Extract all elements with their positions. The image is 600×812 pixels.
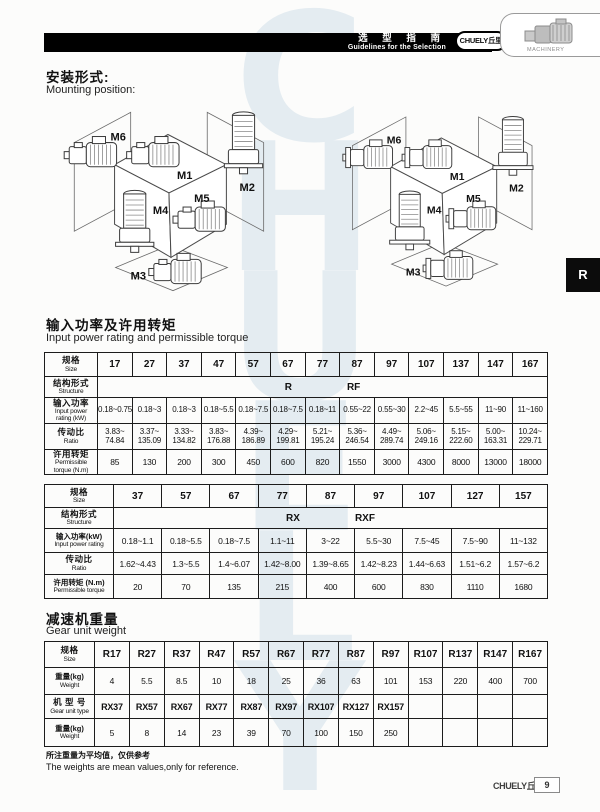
type-weight-cell: 23: [199, 719, 234, 747]
label-m4: M4: [427, 204, 442, 216]
type-cell: RX67: [164, 695, 199, 719]
type-cell: [513, 695, 548, 719]
label-m2: M2: [509, 182, 524, 194]
torque-cell: 130: [132, 450, 167, 475]
ratio-cell: 3.83~ 74.84: [98, 424, 133, 450]
power-cell: 0.55~22: [340, 398, 375, 424]
machinery-tab: MACHINERY: [500, 13, 600, 57]
size-cell: 127: [451, 485, 499, 508]
size-cell: 97: [374, 353, 409, 377]
torque-cell: 820: [305, 450, 340, 475]
power-cell: 0.18~5.5: [201, 398, 236, 424]
torque-cell: 70: [162, 575, 210, 599]
motor-m2: [493, 116, 533, 175]
ratio-cell: 1.39~8.65: [306, 553, 354, 575]
row-label: 传动比 Ratio: [45, 553, 114, 575]
table-row: 输入功率 Input power rating (kW) 0.18~0.750.…: [45, 398, 548, 424]
torque-cell: 215: [258, 575, 306, 599]
type-weight-cell: [513, 719, 548, 747]
power-cell: 0.55~30: [374, 398, 409, 424]
label-m2: M2: [239, 182, 254, 194]
type-cell: [443, 695, 478, 719]
gearmotor-photo-icon: [523, 17, 579, 47]
table-row: 规格 Size 375767778797107127157: [45, 485, 548, 508]
type-weight-cell: 70: [269, 719, 304, 747]
power-cell: 0.18~11: [305, 398, 340, 424]
motor-m3: [423, 251, 473, 280]
header-title-en: Guidelines for the Selection: [44, 44, 446, 52]
row-label: 输入功率(kW) Input power rating: [45, 529, 114, 553]
header-title-cn: 选 型 指 南: [44, 34, 446, 44]
header-bar: 选 型 指 南 Guidelines for the Selection: [44, 33, 492, 52]
type-cell: RX77: [199, 695, 234, 719]
table-row: 输入功率(kW) Input power rating 0.18~1.10.18…: [45, 529, 548, 553]
size-cell: 37: [114, 485, 162, 508]
ratio-cell: 10.24~ 229.71: [513, 424, 548, 450]
size-cell: 97: [355, 485, 403, 508]
power-heading-cn: 输入功率及许用转矩: [46, 314, 177, 334]
size-cell: 77: [305, 353, 340, 377]
size-cell: 57: [162, 485, 210, 508]
row-label: 传动比 Ratio: [45, 424, 98, 450]
machinery-label: MACHINERY: [527, 47, 564, 53]
size-cell: 17: [98, 353, 133, 377]
label-m5: M5: [194, 193, 209, 205]
size-cell: 47: [201, 353, 236, 377]
ratio-cell: 1.62~4.43: [114, 553, 162, 575]
row-label: 许用转矩 (N.m) Permissible torque: [45, 575, 114, 599]
type-cell: [408, 695, 443, 719]
row-label: 规格 Size: [45, 642, 95, 668]
ratio-cell: 1.42~8.23: [355, 553, 403, 575]
ratio-cell: 1.44~6.63: [403, 553, 451, 575]
mounting-heading-cn: 安装形式:: [46, 66, 110, 86]
size-cell: R77: [304, 642, 339, 668]
size-cell: R87: [338, 642, 373, 668]
table-row: 结构形式 Structure RX RXF: [45, 508, 548, 529]
weight-cell: 153: [408, 668, 443, 695]
power-cell: 7.5~45: [403, 529, 451, 553]
weight-cell: 220: [443, 668, 478, 695]
table-row: 重量(kg) Weight 5814233970100150250: [45, 719, 548, 747]
type-weight-cell: 150: [338, 719, 373, 747]
size-cell: 107: [403, 485, 451, 508]
size-cell: R17: [95, 642, 130, 668]
size-cell: R97: [373, 642, 408, 668]
note-en: The weights are mean values,only for ref…: [46, 762, 239, 772]
row-label: 规格 Size: [45, 485, 114, 508]
table-row: 传动比 Ratio 3.83~ 74.843.37~ 135.093.33~ 1…: [45, 424, 548, 450]
torque-cell: 600: [271, 450, 306, 475]
power-cell: 11~160: [513, 398, 548, 424]
power-cell: 11~90: [478, 398, 513, 424]
torque-cell: 600: [355, 575, 403, 599]
rx-rxf-rating-table: 规格 Size 375767778797107127157 结构形式 Struc…: [44, 484, 548, 599]
row-label: 机 型 号 Gear unit type: [45, 695, 95, 719]
size-cell: 57: [236, 353, 271, 377]
power-cell: 0.18~3: [167, 398, 202, 424]
label-m5: M5: [466, 193, 481, 205]
ratio-cell: 4.49~ 289.74: [374, 424, 409, 450]
type-weight-cell: [443, 719, 478, 747]
torque-cell: 85: [98, 450, 133, 475]
table-row: 重量(kg) Weight 45.58.51018253663101153220…: [45, 668, 548, 695]
torque-cell: 135: [210, 575, 258, 599]
type-cell: RX57: [129, 695, 164, 719]
power-cell: 0.18~7.5: [210, 529, 258, 553]
section-tab-r: R: [566, 258, 600, 292]
type-cell: RX37: [95, 695, 130, 719]
type-cell: RX87: [234, 695, 269, 719]
table-row: 机 型 号 Gear unit type RX37RX57RX67RX77RX8…: [45, 695, 548, 719]
motor-m2: [224, 112, 262, 174]
row-label: 结构形式 Structure: [45, 377, 98, 398]
mounting-diagram-foot: M1 M2 M3 M4 M5 M6: [38, 98, 310, 306]
torque-cell: 1680: [499, 575, 547, 599]
motor-m3: [149, 253, 201, 283]
size-cell: 87: [306, 485, 354, 508]
size-cell: R67: [269, 642, 304, 668]
type-weight-cell: [478, 719, 513, 747]
row-label: 规格 Size: [45, 353, 98, 377]
label-m3: M3: [131, 271, 146, 283]
size-cell: 137: [444, 353, 479, 377]
weight-cell: 18: [234, 668, 269, 695]
ratio-cell: 5.15~ 222.60: [444, 424, 479, 450]
size-cell: 77: [258, 485, 306, 508]
torque-cell: 8000: [444, 450, 479, 475]
power-cell: 11~132: [499, 529, 547, 553]
row-label: 重量(kg) Weight: [45, 719, 95, 747]
motor-m6: [343, 140, 393, 169]
weight-cell: 700: [513, 668, 548, 695]
power-cell: 5.5~55: [444, 398, 479, 424]
mounting-diagram-flange: M1 M2 M3 M4 M5 M6: [318, 98, 576, 306]
type-cell: RX97: [269, 695, 304, 719]
mounting-heading-en: Mounting position:: [46, 84, 135, 96]
type-weight-cell: 39: [234, 719, 269, 747]
torque-cell: 300: [201, 450, 236, 475]
ratio-cell: 5.06~ 249.16: [409, 424, 444, 450]
weight-cell: 25: [269, 668, 304, 695]
table-row: 结构形式 Structure R RF: [45, 377, 548, 398]
row-label: 许用转矩 Permissible torque (N.m): [45, 450, 98, 475]
torque-cell: 450: [236, 450, 271, 475]
ratio-cell: 5.21~ 195.24: [305, 424, 340, 450]
ratio-cell: 4.29~ 199.81: [271, 424, 306, 450]
ratio-cell: 1.57~6.2: [499, 553, 547, 575]
size-cell: R137: [443, 642, 478, 668]
ratio-cell: 1.51~6.2: [451, 553, 499, 575]
ratio-cell: 5.36~ 246.54: [340, 424, 375, 450]
ratio-cell: 1.4~6.07: [210, 553, 258, 575]
torque-cell: 13000: [478, 450, 513, 475]
type-cell: [478, 695, 513, 719]
power-cell: 2.2~45: [409, 398, 444, 424]
size-cell: 27: [132, 353, 167, 377]
power-cell: 5.5~30: [355, 529, 403, 553]
table-row: 规格 Size 172737475767778797107137147167: [45, 353, 548, 377]
structure-cell: R RF: [98, 377, 548, 398]
table-row: 许用转矩 (N.m) Permissible torque 2070135215…: [45, 575, 548, 599]
size-cell: R147: [478, 642, 513, 668]
weight-heading-en: Gear unit weight: [46, 625, 126, 637]
size-cell: 107: [409, 353, 444, 377]
type-cell: RX157: [373, 695, 408, 719]
torque-cell: 3000: [374, 450, 409, 475]
motor-m6: [64, 137, 116, 167]
torque-cell: 830: [403, 575, 451, 599]
type-cell: RX107: [304, 695, 339, 719]
size-cell: R47: [199, 642, 234, 668]
ratio-cell: 4.39~ 186.89: [236, 424, 271, 450]
row-label: 结构形式 Structure: [45, 508, 114, 529]
ratio-cell: 3.83~ 176.88: [201, 424, 236, 450]
power-cell: 0.18~7.5: [271, 398, 306, 424]
row-label: 重量(kg) Weight: [45, 668, 95, 695]
power-heading-en: Input power rating and permissible torqu…: [46, 332, 248, 344]
type-weight-cell: 100: [304, 719, 339, 747]
size-cell: 67: [210, 485, 258, 508]
size-cell: 167: [513, 353, 548, 377]
weight-cell: 63: [338, 668, 373, 695]
row-label: 输入功率 Input power rating (kW): [45, 398, 98, 424]
weight-cell: 8.5: [164, 668, 199, 695]
power-cell: 0.18~5.5: [162, 529, 210, 553]
page-number: 9: [534, 777, 560, 793]
table-row: 传动比 Ratio 1.62~4.431.3~5.51.4~6.071.42~8…: [45, 553, 548, 575]
power-cell: 3~22: [306, 529, 354, 553]
weight-cell: 36: [304, 668, 339, 695]
weight-cell: 400: [478, 668, 513, 695]
torque-cell: 4300: [409, 450, 444, 475]
structure-cell: RX RXF: [114, 508, 548, 529]
ratio-cell: 3.33~ 134.82: [167, 424, 202, 450]
ratio-cell: 5.00~ 163.31: [478, 424, 513, 450]
type-cell: RX127: [338, 695, 373, 719]
size-cell: R57: [234, 642, 269, 668]
torque-cell: 20: [114, 575, 162, 599]
torque-cell: 18000: [513, 450, 548, 475]
power-cell: 7.5~90: [451, 529, 499, 553]
power-cell: 0.18~7.5: [236, 398, 271, 424]
size-cell: 87: [340, 353, 375, 377]
label-m4: M4: [153, 205, 169, 217]
size-cell: R27: [129, 642, 164, 668]
label-m3: M3: [406, 267, 421, 279]
weight-cell: 101: [373, 668, 408, 695]
size-cell: 37: [167, 353, 202, 377]
size-cell: 147: [478, 353, 513, 377]
ratio-cell: 1.42~8.00: [258, 553, 306, 575]
weight-cell: 5.5: [129, 668, 164, 695]
catalog-page: C H U E L Y 选 型 指 南 Guidelines for the S…: [0, 0, 600, 812]
torque-cell: 400: [306, 575, 354, 599]
label-m1: M1: [450, 171, 465, 183]
torque-cell: 1110: [451, 575, 499, 599]
size-cell: R167: [513, 642, 548, 668]
power-cell: 0.18~0.75: [98, 398, 133, 424]
power-cell: 1.1~11: [258, 529, 306, 553]
type-weight-cell: 5: [95, 719, 130, 747]
type-weight-cell: [408, 719, 443, 747]
size-cell: 157: [499, 485, 547, 508]
r-rf-rating-table: 规格 Size 172737475767778797107137147167 结…: [44, 352, 548, 475]
power-cell: 0.18~3: [132, 398, 167, 424]
weight-cell: 10: [199, 668, 234, 695]
type-weight-cell: 8: [129, 719, 164, 747]
table-row: 规格 Size R17R27R37R47R57R67R77R87R97R107R…: [45, 642, 548, 668]
label-m1: M1: [177, 170, 192, 182]
type-weight-cell: 14: [164, 719, 199, 747]
table-row: 许用转矩 Permissible torque (N.m) 8513020030…: [45, 450, 548, 475]
size-cell: 67: [271, 353, 306, 377]
weight-cell: 4: [95, 668, 130, 695]
torque-cell: 1550: [340, 450, 375, 475]
label-m6: M6: [387, 135, 402, 147]
ratio-cell: 3.37~ 135.09: [132, 424, 167, 450]
power-cell: 0.18~1.1: [114, 529, 162, 553]
size-cell: R37: [164, 642, 199, 668]
torque-cell: 200: [167, 450, 202, 475]
label-m6: M6: [111, 132, 126, 144]
size-cell: R107: [408, 642, 443, 668]
gear-weight-table: 规格 Size R17R27R37R47R57R67R77R87R97R107R…: [44, 641, 548, 747]
ratio-cell: 1.3~5.5: [162, 553, 210, 575]
note-cn: 所注重量为平均值，仅供参考: [46, 750, 150, 761]
type-weight-cell: 250: [373, 719, 408, 747]
